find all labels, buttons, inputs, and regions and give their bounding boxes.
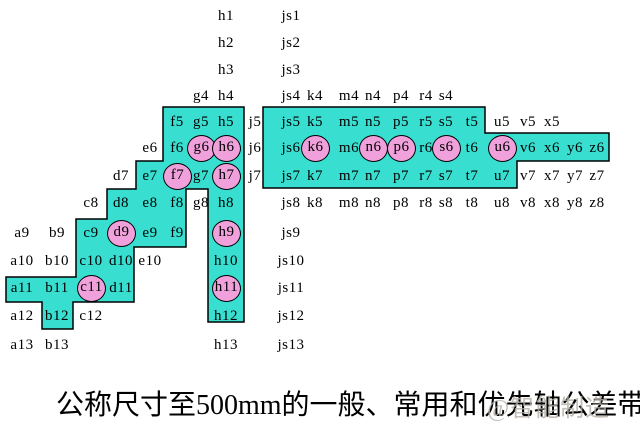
zone-h4: h4 <box>208 87 244 105</box>
zone-k7: k7 <box>297 167 333 185</box>
shaft-tolerance-zone-diagram: h1js1h2js2h3js3g4h4js4k4m4n4p4r4s4f5g5h5… <box>0 0 640 423</box>
zone-z6: z6 <box>579 139 615 157</box>
zone-js1: js1 <box>273 7 309 25</box>
zone-k8: k8 <box>297 194 333 212</box>
zone-s4: s4 <box>428 87 464 105</box>
zone-j6: j6 <box>237 139 273 157</box>
zone-k5: k5 <box>297 113 333 131</box>
zone-j5: j5 <box>237 113 273 131</box>
zone-h12: h12 <box>208 307 244 325</box>
watermark-overlay: @智能制造 <box>487 388 610 423</box>
zone-c11: c11 <box>77 275 106 302</box>
zone-h13: h13 <box>208 336 244 354</box>
zone-a11: a11 <box>4 279 40 297</box>
zone-js11: js11 <box>273 279 309 297</box>
zone-b12: b12 <box>39 307 75 325</box>
zone-a9: a9 <box>4 224 40 242</box>
zone-e10: e10 <box>132 252 168 270</box>
zone-h9: h9 <box>212 220 241 247</box>
zone-n6: n6 <box>359 135 388 162</box>
zone-t6: t6 <box>454 139 490 157</box>
zone-z7: z7 <box>579 167 615 185</box>
zone-x5: x5 <box>534 113 570 131</box>
zone-js10: js10 <box>273 252 309 270</box>
zone-h2: h2 <box>208 34 244 52</box>
zone-f9: f9 <box>159 224 195 242</box>
zone-a13: a13 <box>4 336 40 354</box>
zone-js13: js13 <box>273 336 309 354</box>
zone-k4: k4 <box>297 87 333 105</box>
zone-h3: h3 <box>208 61 244 79</box>
zone-h1: h1 <box>208 7 244 25</box>
zone-b13: b13 <box>39 336 75 354</box>
zone-j7: j7 <box>237 167 273 185</box>
zone-js3: js3 <box>273 61 309 79</box>
zone-c9: c9 <box>73 224 109 242</box>
zone-k6: k6 <box>301 135 330 162</box>
zone-js12: js12 <box>273 307 309 325</box>
zone-h8: h8 <box>208 194 244 212</box>
zone-b11: b11 <box>39 279 75 297</box>
zone-js2: js2 <box>273 34 309 52</box>
zone-h10: h10 <box>208 252 244 270</box>
zone-c12: c12 <box>73 307 109 325</box>
zone-b10: b10 <box>39 252 75 270</box>
zone-h11: h11 <box>212 275 241 302</box>
zone-js9: js9 <box>273 224 309 242</box>
zone-d11: d11 <box>103 279 139 297</box>
zone-labels-layer: h1js1h2js2h3js3g4h4js4k4m4n4p4r4s4f5g5h5… <box>0 0 640 380</box>
zone-a12: a12 <box>4 307 40 325</box>
zone-a10: a10 <box>4 252 40 270</box>
zone-b9: b9 <box>39 224 75 242</box>
zone-z8: z8 <box>579 194 615 212</box>
